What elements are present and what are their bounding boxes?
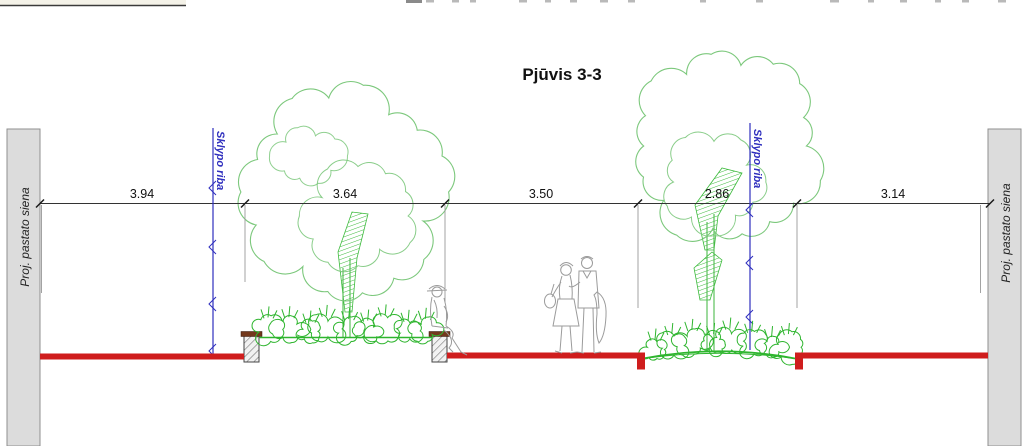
dim-label-1: 3.94 xyxy=(130,187,154,201)
section-title: Pjūvis 3-3 xyxy=(522,65,601,84)
people xyxy=(427,257,606,356)
curb-step-left xyxy=(637,359,645,370)
boundary-left-label: Sklypo riba xyxy=(214,131,226,190)
tree-right xyxy=(636,51,824,351)
top-strip xyxy=(0,0,1006,6)
planter-curb-left xyxy=(244,336,259,362)
plot-boundaries: Sklypo riba Sklypo riba xyxy=(209,123,763,358)
dim-label-5: 3.14 xyxy=(881,187,905,201)
shrub-tuft xyxy=(781,323,797,335)
planter-left xyxy=(241,304,450,362)
tree-right-branch-hatch-2 xyxy=(694,252,722,300)
dim-label-3: 3.50 xyxy=(529,187,553,201)
shrub-tuft xyxy=(418,308,434,320)
planter-curb-right xyxy=(432,336,447,362)
walking-couple xyxy=(545,257,607,354)
top-strip-bar xyxy=(0,0,186,5)
dimension-extension-lines xyxy=(42,205,981,308)
shrub-tuft xyxy=(261,306,277,318)
planter-right xyxy=(639,318,803,365)
tree-right-canopy xyxy=(636,51,824,241)
boundary-left: Sklypo riba xyxy=(209,128,226,358)
shrub-tuft xyxy=(648,329,664,341)
section-drawing-canvas: Proj. pastato siena Proj. pastato siena … xyxy=(0,0,1024,446)
shrub xyxy=(352,318,383,343)
shrub-tuft xyxy=(401,310,417,322)
curb-step-right xyxy=(795,359,803,370)
ground-right-segment xyxy=(795,353,988,359)
right-wall xyxy=(988,129,1021,446)
right-wall-label: Proj. pastato siena xyxy=(999,183,1013,283)
shrub-tuft xyxy=(707,323,723,335)
shrub xyxy=(333,316,365,345)
building-walls: Proj. pastato siena Proj. pastato siena xyxy=(7,129,1021,446)
dimension-chain: 3.94 3.64 3.50 2.86 3.14 xyxy=(36,187,994,308)
tree-left xyxy=(238,82,455,337)
ground-line xyxy=(40,353,988,370)
boundary-right-label: Sklypo riba xyxy=(751,129,763,188)
shrub-tuft xyxy=(723,318,739,330)
shrub-tuft xyxy=(319,305,335,317)
shrub-tuft xyxy=(282,306,298,318)
left-wall-label: Proj. pastato siena xyxy=(18,187,32,287)
ground-middle-segment xyxy=(447,353,645,359)
shrub xyxy=(308,314,346,343)
shrub-tuft xyxy=(745,321,761,333)
top-clipped-text-marks xyxy=(406,0,1006,3)
shrubs-right xyxy=(639,318,803,365)
dim-label-2: 3.64 xyxy=(333,187,357,201)
dim-label-4: 2.86 xyxy=(705,187,729,201)
ground-left-segment xyxy=(40,354,244,360)
tree-left-canopy-inner-2 xyxy=(269,126,348,186)
shrub-tuft xyxy=(361,310,377,322)
trees xyxy=(238,51,824,351)
